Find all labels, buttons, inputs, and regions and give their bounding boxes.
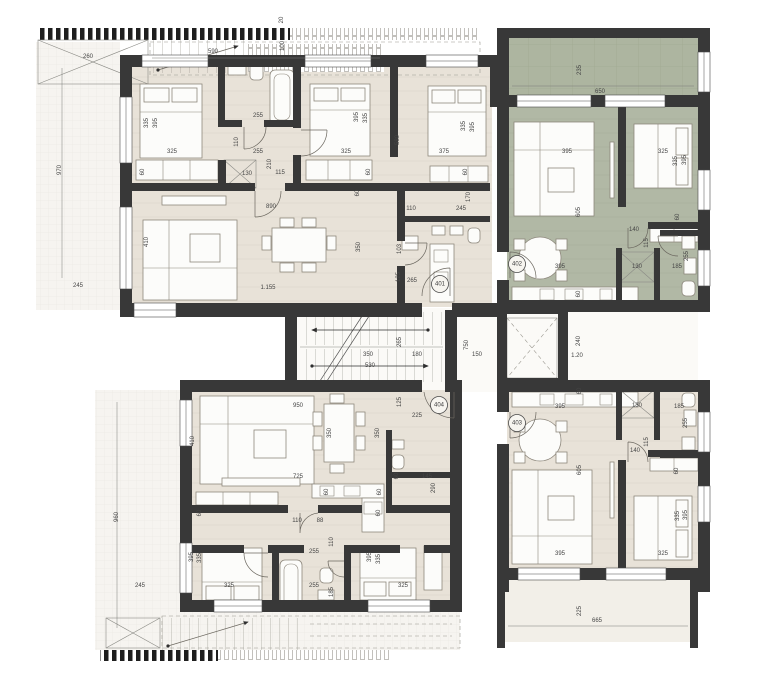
unit-badge-404: 404: [431, 397, 448, 414]
dimension-label: 60: [366, 168, 372, 175]
dimension-label: 375: [439, 149, 450, 155]
dimension-label: 110: [234, 137, 240, 147]
dimension-label: 335: [461, 120, 467, 131]
dimension-label: 225: [577, 605, 583, 616]
dimension-label: 60: [674, 467, 680, 474]
dimension-label: 60: [463, 168, 469, 175]
dimension-label: 325: [658, 149, 669, 155]
dimension-label: 335: [144, 117, 150, 128]
dimension-label: 103: [397, 243, 403, 254]
dimension-label: 20: [279, 16, 285, 23]
dimension-label: 245: [135, 583, 146, 589]
dimension-label: 125: [396, 271, 402, 282]
dimension-label: 950: [293, 403, 304, 409]
slat-strip-bottom: [218, 650, 390, 660]
dimension-label: 750: [464, 339, 470, 350]
dimension-label: 590: [208, 49, 219, 55]
dimension-label: 145: [422, 474, 433, 480]
dimension-label: 335: [363, 112, 369, 123]
dimension-label: 290: [431, 482, 437, 493]
unit-badge-403: 403: [509, 415, 526, 432]
dimension-label: 265: [397, 336, 403, 347]
dimension-label: 395: [682, 154, 688, 165]
dimension-label: 255: [684, 250, 690, 261]
dimension-label: 395: [683, 509, 689, 520]
dimension-label: 60: [197, 509, 203, 516]
dimension-label: 580: [395, 134, 401, 145]
dimension-label: 185: [672, 264, 683, 270]
floor-plan-page: 2605902010097024596024522566523565033539…: [0, 0, 768, 688]
dimension-label: 335: [376, 553, 382, 564]
dimension-label: 970: [57, 164, 63, 175]
dimension-label: 115: [275, 170, 285, 176]
dimension-label: 255: [309, 549, 320, 555]
dimension-label: 265: [407, 278, 418, 284]
dimension-label: 225: [412, 413, 423, 419]
dimension-label: 130: [632, 403, 643, 409]
dimension-label: 725: [293, 474, 304, 480]
dimension-label: 890: [266, 204, 277, 210]
dimension-label: 395: [367, 551, 373, 562]
dimension-label: 125: [397, 396, 403, 407]
dimension-label: 60: [324, 488, 330, 495]
unit-badge-401: 401: [432, 276, 449, 293]
dimension-label: 1.20: [571, 353, 583, 359]
pergola-hatch-strip: [40, 28, 290, 40]
dimension-label: 395: [470, 121, 476, 132]
dimension-label: 395: [354, 111, 360, 122]
dimension-label: 115: [644, 437, 650, 447]
dimension-label: 350: [363, 352, 374, 358]
dimension-label: 960: [114, 511, 120, 522]
dimension-label: 140: [629, 227, 640, 233]
dimension-label: 110: [329, 537, 335, 547]
dimension-label: 260: [83, 54, 94, 60]
dimension-label: 130: [242, 171, 253, 177]
dimension-label: 60: [140, 168, 146, 175]
dimension-label: 395: [562, 149, 573, 155]
dimension-label: 1.155: [260, 285, 276, 291]
dimension-label: 325: [167, 149, 178, 155]
dimension-label: 530: [365, 363, 376, 369]
dimension-label: 150: [472, 352, 483, 358]
dimension-label: 325: [341, 149, 352, 155]
dimension-label: 395: [189, 551, 195, 562]
dimension-label: 325: [398, 583, 409, 589]
stairs-arrow-dot: [156, 68, 159, 71]
dimension-label: 255: [253, 149, 264, 155]
dimension-label: 110: [406, 206, 416, 212]
dimension-label: 100: [280, 40, 286, 51]
dimension-label: 88: [317, 518, 324, 524]
floor-plan-canvas: 2605902010097024596024522566523565033539…: [0, 0, 768, 688]
unit-badge-number: 403: [512, 421, 523, 427]
dimension-label: 325: [658, 551, 669, 557]
dimension-label: 605: [577, 464, 583, 475]
dimension-label: 115: [644, 238, 650, 248]
staircase: [300, 310, 443, 384]
dimension-label: 60: [377, 488, 383, 495]
dimension-label: 60: [394, 472, 400, 479]
dimension-label: 255: [309, 583, 320, 589]
dimension-label: 130: [632, 264, 643, 270]
dimension-label: 110: [292, 518, 302, 524]
dimension-label: 60: [355, 189, 361, 196]
dimension-label: 185: [329, 586, 335, 597]
dimension-label: 180: [412, 352, 423, 358]
pergola-slat-strip: [290, 28, 480, 40]
dimension-label: 255: [253, 113, 264, 119]
dimension-label: 210: [267, 158, 273, 169]
dimension-label: 605: [576, 206, 582, 217]
dimension-label: 245: [456, 206, 467, 212]
dimension-label: 255: [683, 417, 689, 428]
dimension-label: 410: [144, 236, 150, 247]
dimension-label: 395: [555, 264, 566, 270]
dimension-label: 350: [327, 427, 333, 438]
dimension-label: 395: [555, 404, 566, 410]
dimension-label: 140: [630, 448, 641, 454]
apartment-403-balcony: [505, 580, 696, 642]
dimension-label: 350: [375, 427, 381, 438]
hatch-strip-bottom: [100, 650, 218, 661]
dimension-label: 665: [592, 618, 603, 624]
unit-badge-number: 404: [434, 403, 445, 409]
unit-badge-402: 402: [509, 256, 526, 273]
terrace-top-left: [36, 42, 120, 310]
dimension-label: 395: [153, 117, 159, 128]
dimension-label: 325: [224, 583, 235, 589]
dimension-label: 240: [576, 335, 582, 346]
dimension-label: 60: [376, 509, 382, 516]
exterior-stairs-bottom: [162, 618, 300, 650]
dimension-label: 170: [466, 191, 472, 202]
dimension-label: 395: [555, 551, 566, 557]
unit-badge-number: 401: [435, 282, 446, 288]
dimension-label: 60: [675, 213, 681, 220]
terrace-bottom-left: [95, 390, 180, 648]
dimension-label: 335: [197, 552, 203, 563]
dimension-label: 350: [356, 241, 362, 252]
dimension-label: 335: [673, 155, 679, 166]
dimension-label: 245: [73, 283, 84, 289]
dimension-label: 60: [577, 387, 583, 394]
dimension-label: 185: [674, 404, 685, 410]
dimension-label: 60: [576, 290, 582, 297]
dimension-label: 335: [675, 510, 681, 521]
dimension-label: 410: [190, 435, 196, 446]
unit-badge-number: 402: [512, 262, 523, 268]
dimension-label: 650: [595, 89, 606, 95]
dimension-label: 235: [577, 64, 583, 75]
stairs-arrow-dot2: [166, 644, 169, 647]
